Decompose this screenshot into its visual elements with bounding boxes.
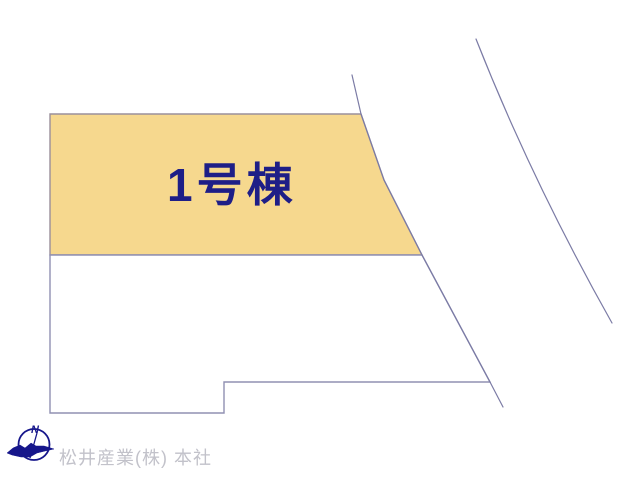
compass-bird-shape [7,443,54,457]
adjacent-parcel [50,255,490,413]
site-plan-canvas: 1号棟 N 松井産業(株) 本社 [0,0,640,480]
site-plan-drawing [0,0,640,480]
building-label: 1号棟 [167,162,297,208]
compass-north-label: N [31,424,39,436]
road-edge-line-right [476,39,612,323]
company-watermark: 松井産業(株) 本社 [59,449,212,469]
